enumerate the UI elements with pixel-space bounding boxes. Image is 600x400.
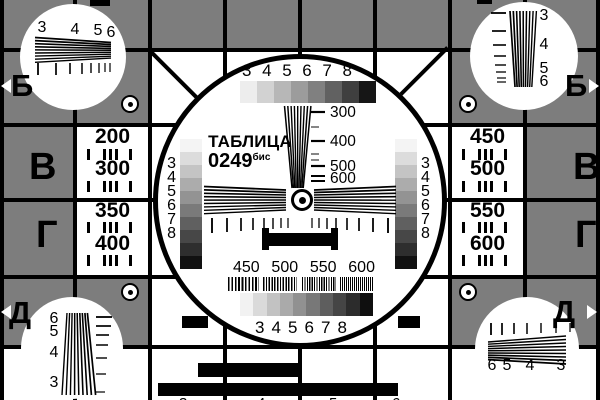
edge-digit: 3 bbox=[179, 396, 187, 400]
edge-digit: 5 bbox=[329, 396, 337, 400]
scale-label: 4 bbox=[262, 62, 271, 78]
gray-step bbox=[395, 256, 417, 269]
scale-label: 6 bbox=[305, 319, 314, 335]
scale-label: 500 bbox=[271, 260, 298, 275]
gray-step bbox=[395, 191, 417, 204]
gray-step bbox=[240, 293, 253, 316]
edge-digit: 6 bbox=[392, 396, 400, 400]
gray-step bbox=[257, 81, 274, 103]
frequency-tick-marks bbox=[311, 104, 328, 186]
resolution-wedge-vertical bbox=[505, 9, 541, 89]
gray-step bbox=[180, 178, 202, 191]
scale-label: 600 bbox=[348, 260, 375, 275]
frequency-label: 400 bbox=[330, 134, 356, 150]
gray-step bbox=[267, 293, 280, 316]
wedge-tick-marks bbox=[487, 10, 506, 86]
wedge-tick-marks bbox=[306, 217, 394, 234]
bullseye-mark bbox=[121, 95, 139, 113]
scale-label: 8 bbox=[421, 227, 437, 241]
gray-step bbox=[306, 293, 319, 316]
tick-pattern bbox=[450, 255, 525, 266]
scale-label: 6 bbox=[302, 62, 311, 78]
gray-step bbox=[280, 293, 293, 316]
gray-step bbox=[291, 81, 308, 103]
wedge-tick-marks bbox=[206, 217, 294, 234]
edge-digit: 3 bbox=[176, 0, 184, 3]
definition-lines-550 bbox=[302, 277, 336, 291]
value-label: 550 bbox=[450, 200, 525, 221]
tick-pattern bbox=[75, 255, 150, 266]
row-marker: Д bbox=[9, 297, 31, 328]
gray-step bbox=[180, 191, 202, 204]
scale-label: 8 bbox=[342, 62, 351, 78]
gray-step bbox=[360, 293, 373, 316]
value-label: 200 bbox=[75, 126, 150, 147]
grayscale-scale-bottom: 345678 bbox=[255, 319, 347, 335]
gray-step bbox=[359, 81, 376, 103]
tick-pattern bbox=[450, 181, 525, 192]
scale-label: 3 bbox=[242, 62, 251, 78]
wedge-tick-marks bbox=[95, 313, 115, 397]
resolution-wedge-left bbox=[202, 184, 288, 217]
gray-step bbox=[395, 204, 417, 217]
frequency-scale-bottom: 450500550600 bbox=[233, 260, 375, 275]
card-title: ТАБЛИЦА bbox=[205, 133, 295, 150]
gray-step bbox=[240, 81, 257, 103]
scale-label: 8 bbox=[160, 227, 176, 241]
gray-step bbox=[325, 81, 342, 103]
grayscale-strip-bottom bbox=[240, 293, 373, 316]
row-marker: Д bbox=[553, 296, 575, 327]
left-arrow-icon bbox=[1, 79, 11, 93]
tv-test-card: 3 4 5 6 3 4 5 6 bbox=[0, 0, 600, 400]
grayscale-strip-right bbox=[395, 139, 417, 269]
grayscale-strip-left bbox=[180, 139, 202, 269]
row-marker: Б bbox=[11, 70, 33, 101]
edge-digit: 4 bbox=[253, 0, 261, 3]
gray-step bbox=[320, 293, 333, 316]
tick-pattern bbox=[75, 181, 150, 192]
resolution-wedge-right bbox=[312, 184, 398, 217]
row-marker: Б bbox=[565, 70, 587, 101]
gray-step bbox=[395, 139, 417, 152]
gray-step bbox=[274, 81, 291, 103]
value-label: 600 bbox=[450, 233, 525, 254]
grayscale-scale-right: 345678 bbox=[421, 157, 437, 241]
scale-label: 550 bbox=[310, 260, 337, 275]
gray-step bbox=[395, 152, 417, 165]
gray-step bbox=[180, 204, 202, 217]
bullseye-mark bbox=[121, 283, 139, 301]
value-label: 500 bbox=[450, 158, 525, 179]
scale-label: 8 bbox=[338, 319, 347, 335]
row-marker: В bbox=[29, 148, 56, 186]
grayscale-scale-top: 345678 bbox=[242, 62, 352, 78]
bottom-long-bar bbox=[158, 383, 398, 396]
bullseye-mark bbox=[459, 283, 477, 301]
black-square-mark bbox=[398, 316, 420, 328]
gray-step bbox=[308, 81, 325, 103]
center-bullseye-mark bbox=[291, 189, 313, 211]
gray-step bbox=[395, 217, 417, 230]
reference-bar-cap bbox=[331, 228, 338, 250]
bottom-short-bar bbox=[198, 363, 302, 377]
gray-step bbox=[180, 152, 202, 165]
gray-step bbox=[395, 178, 417, 191]
gray-step bbox=[395, 230, 417, 243]
scale-label: 3 bbox=[255, 319, 264, 335]
gray-step bbox=[180, 230, 202, 243]
definition-lines-500 bbox=[263, 277, 297, 291]
gray-step bbox=[395, 243, 417, 256]
edge-digit: 6 bbox=[399, 0, 407, 3]
card-number: 0249бис bbox=[208, 151, 270, 171]
scale-label: 5 bbox=[282, 62, 291, 78]
scale-label: 5 bbox=[288, 319, 297, 335]
wedge-tick-marks bbox=[36, 62, 116, 76]
scale-label: 4 bbox=[272, 319, 281, 335]
value-label: 350 bbox=[75, 200, 150, 221]
row-marker: Г bbox=[575, 216, 597, 254]
gray-step bbox=[333, 293, 346, 316]
row-marker: В bbox=[573, 148, 600, 186]
definition-lines-600 bbox=[340, 277, 373, 291]
card-number-suffix: бис bbox=[253, 152, 271, 163]
scale-label: 7 bbox=[321, 319, 330, 335]
value-label: 450 bbox=[450, 126, 525, 147]
wedge-label: 3 bbox=[35, 21, 49, 35]
scale-label: 450 bbox=[233, 260, 260, 275]
right-arrow-icon bbox=[587, 305, 597, 319]
row-marker: Г bbox=[36, 216, 58, 254]
gray-step bbox=[293, 293, 306, 316]
definition-lines-450 bbox=[228, 277, 259, 291]
grayscale-scale-left: 345678 bbox=[160, 157, 176, 241]
gray-step bbox=[253, 293, 266, 316]
edge-mark bbox=[477, 0, 492, 4]
value-label: 400 bbox=[75, 233, 150, 254]
value-label: 300 bbox=[75, 158, 150, 179]
gray-step bbox=[180, 139, 202, 152]
reference-bar bbox=[262, 233, 338, 246]
bullseye-mark bbox=[459, 95, 477, 113]
gray-step bbox=[346, 293, 359, 316]
resolution-wedge-vertical bbox=[58, 311, 100, 397]
gray-step bbox=[180, 217, 202, 230]
edge-mark bbox=[90, 0, 110, 6]
gray-step bbox=[180, 256, 202, 269]
scale-label: 7 bbox=[322, 62, 331, 78]
gray-step bbox=[395, 165, 417, 178]
edge-digit: 5 bbox=[326, 0, 334, 3]
resolution-wedge-horizontal bbox=[486, 333, 568, 367]
gray-step bbox=[180, 243, 202, 256]
frequency-label: 300 bbox=[330, 105, 356, 121]
gray-step bbox=[342, 81, 359, 103]
gray-step bbox=[180, 165, 202, 178]
grayscale-strip-top bbox=[240, 81, 376, 103]
black-square-mark bbox=[182, 316, 208, 328]
edge-digit: 4 bbox=[257, 396, 265, 400]
card-number-value: 0249 bbox=[208, 150, 253, 172]
resolution-wedge-horizontal bbox=[33, 35, 113, 65]
right-arrow-icon bbox=[589, 79, 599, 93]
